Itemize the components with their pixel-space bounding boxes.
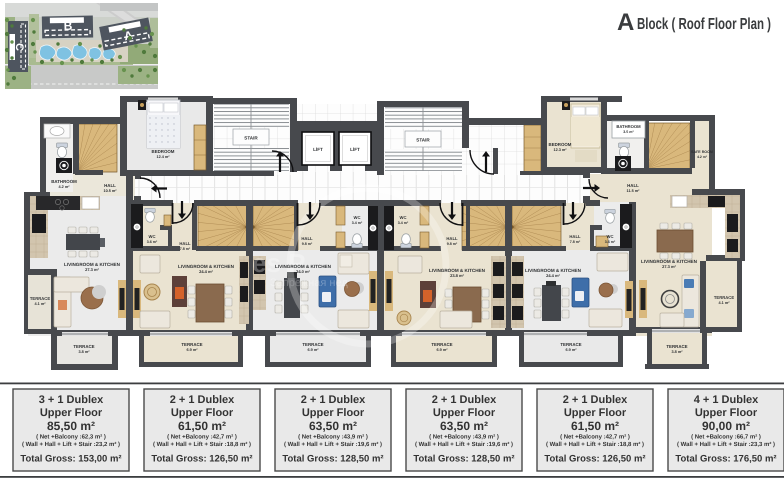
svg-text:2 + 1 Dublex: 2 + 1 Dublex [432, 394, 497, 406]
svg-text:( Wall + Hall + Lift + Stair :: ( Wall + Hall + Lift + Stair :19,6 m² ) [284, 441, 382, 448]
svg-text:WC: WC [400, 215, 407, 220]
svg-text:3.6 m²: 3.6 m² [605, 240, 616, 244]
svg-text:3.8 m²: 3.8 m² [79, 350, 91, 354]
svg-text:TERRACE: TERRACE [560, 342, 581, 347]
svg-text:( Net +Balcony :43,9 m² ): ( Net +Balcony :43,9 m² ) [298, 434, 368, 441]
svg-text:TERRACE: TERRACE [431, 342, 452, 347]
svg-text:6.9 m²: 6.9 m² [437, 348, 449, 352]
svg-text:HALL: HALL [569, 234, 581, 239]
svg-text:B: B [64, 19, 73, 33]
svg-text:HALL: HALL [179, 241, 191, 246]
svg-text:TERRACE: TERRACE [714, 295, 734, 300]
svg-text:( Wall + Hall + Lift + Stair :: ( Wall + Hall + Lift + Stair :23,2 m² ) [22, 441, 120, 448]
svg-text:WC: WC [354, 215, 361, 220]
svg-text:24.4 m²: 24.4 m² [546, 273, 560, 278]
svg-text:BEDROOM: BEDROOM [549, 142, 572, 147]
svg-text:( Net +Balcony :43,9 m² ): ( Net +Balcony :43,9 m² ) [429, 434, 499, 441]
svg-text:Upper Floor: Upper Floor [433, 407, 496, 419]
svg-text:TERRACE: TERRACE [181, 342, 202, 347]
svg-text:2 + 1 Dublex: 2 + 1 Dublex [563, 394, 628, 406]
svg-text:63,50 m²: 63,50 m² [440, 419, 488, 433]
svg-text:HALL: HALL [301, 236, 313, 241]
svg-text:TERRACE: TERRACE [73, 344, 94, 349]
svg-text:Block ( Roof Floor Plan ): Block ( Roof Floor Plan ) [637, 16, 771, 33]
svg-text:24.0 m²: 24.0 m² [296, 269, 310, 274]
svg-text:3 + 1 Dublex: 3 + 1 Dublex [39, 394, 104, 406]
svg-text:( Wall + Hall + Lift + Stair :: ( Wall + Hall + Lift + Stair :23,3 m² ) [677, 441, 775, 448]
svg-text:HALL: HALL [627, 183, 639, 188]
svg-text:A: A [617, 9, 634, 36]
svg-text:27.3 m²: 27.3 m² [662, 264, 676, 269]
svg-text:3.5 m²: 3.5 m² [623, 130, 634, 134]
svg-text:11.5 m²: 11.5 m² [627, 189, 641, 193]
svg-text:Total Gross: 126,50 m²: Total Gross: 126,50 m² [544, 454, 645, 465]
svg-text:3.4 m²: 3.4 m² [398, 221, 409, 225]
svg-text:90,00 m²: 90,00 m² [702, 419, 750, 433]
svg-text:Total Gross: 128,50 m²: Total Gross: 128,50 m² [413, 454, 514, 465]
svg-text:Total Gross: 153,00 m²: Total Gross: 153,00 m² [20, 454, 121, 465]
svg-text:Upper Floor: Upper Floor [695, 407, 758, 419]
svg-text:WC: WC [149, 234, 156, 239]
svg-text:TERRACE: TERRACE [30, 296, 50, 301]
svg-text:61,50 m²: 61,50 m² [178, 419, 226, 433]
svg-text:12.3 m²: 12.3 m² [553, 148, 567, 152]
svg-text:Запрежная нед: Запрежная нед [270, 277, 348, 289]
svg-text:7.8 m²: 7.8 m² [570, 240, 581, 244]
svg-text:HALL: HALL [104, 183, 116, 188]
svg-text:63,50 m²: 63,50 m² [309, 419, 357, 433]
svg-text:6.9 m²: 6.9 m² [308, 348, 320, 352]
svg-text:6.9 m²: 6.9 m² [566, 348, 578, 352]
svg-text:WC: WC [607, 234, 614, 239]
svg-text:TERRACE: TERRACE [302, 342, 323, 347]
svg-text:9.8 m²: 9.8 m² [302, 242, 313, 246]
svg-text:Total Gross: 128,50 m²: Total Gross: 128,50 m² [282, 454, 383, 465]
svg-text:Total Gross: 126,50 m²: Total Gross: 126,50 m² [151, 454, 252, 465]
svg-text:LİFT: LİFT [313, 147, 323, 152]
svg-text:Upper Floor: Upper Floor [40, 407, 103, 419]
svg-text:( Wall + Hall + Lift + Stair :: ( Wall + Hall + Lift + Stair :18,8 m² ) [546, 441, 644, 448]
svg-text:9.8 m²: 9.8 m² [447, 242, 458, 246]
svg-text:3.4 m²: 3.4 m² [352, 221, 363, 225]
svg-text:7.8 m²: 7.8 m² [180, 247, 191, 251]
svg-text:2 + 1 Dublex: 2 + 1 Dublex [170, 394, 235, 406]
svg-text:( Wall + Hall + Lift + Stair :: ( Wall + Hall + Lift + Stair :18,8 m² ) [153, 441, 251, 448]
svg-text:4 + 1 Dublex: 4 + 1 Dublex [694, 394, 759, 406]
svg-text:4.1 m²: 4.1 m² [35, 302, 47, 306]
svg-text:Upper Floor: Upper Floor [171, 407, 234, 419]
svg-text:LİFT: LİFT [350, 147, 360, 152]
svg-text:10.5 m²: 10.5 m² [103, 189, 117, 193]
svg-text:24.4 m²: 24.4 m² [199, 269, 213, 274]
svg-text:Upper Floor: Upper Floor [302, 407, 365, 419]
svg-text:61,50 m²: 61,50 m² [571, 419, 619, 433]
svg-text:HALL: HALL [446, 236, 458, 241]
svg-text:( Net +Balcony :42,7 m² ): ( Net +Balcony :42,7 m² ) [560, 434, 630, 441]
svg-text:85,50 m²: 85,50 m² [47, 419, 95, 433]
svg-text:BATHROOM: BATHROOM [51, 179, 77, 184]
svg-text:BEDROOM: BEDROOM [152, 149, 175, 154]
svg-text:STAIR: STAIR [244, 136, 258, 141]
svg-text:2 + 1 Dublex: 2 + 1 Dublex [301, 394, 366, 406]
svg-text:SAFE ROOM: SAFE ROOM [691, 150, 713, 154]
svg-text:Total Gross: 176,50 m²: Total Gross: 176,50 m² [675, 454, 776, 465]
svg-text:TERRACE: TERRACE [666, 344, 687, 349]
svg-text:BATHROOM: BATHROOM [616, 124, 641, 129]
svg-text:( Net +Balcony :66,7 m² ): ( Net +Balcony :66,7 m² ) [691, 434, 761, 441]
svg-text:6.9 m²: 6.9 m² [187, 348, 199, 352]
svg-text:( Net +Balcony :62,3 m² ): ( Net +Balcony :62,3 m² ) [36, 434, 106, 441]
svg-text:STAIR: STAIR [416, 138, 430, 143]
svg-text:12.4 m²: 12.4 m² [156, 155, 170, 159]
svg-text:3.8 m²: 3.8 m² [672, 350, 684, 354]
svg-text:23.8 m²: 23.8 m² [450, 273, 464, 278]
svg-text:4.2 m²: 4.2 m² [697, 155, 708, 159]
svg-text:Upper Floor: Upper Floor [564, 407, 627, 419]
svg-text:4.1 m²: 4.1 m² [719, 301, 731, 305]
svg-text:4.2 m²: 4.2 m² [59, 185, 71, 189]
svg-text:C: C [13, 43, 25, 51]
svg-text:( Net +Balcony :42,7 m² ): ( Net +Balcony :42,7 m² ) [167, 434, 237, 441]
svg-text:3.6 m²: 3.6 m² [147, 240, 158, 244]
svg-text:( Wall + Hall + Lift + Stair :: ( Wall + Hall + Lift + Stair :19,6 m² ) [415, 441, 513, 448]
svg-text:27.3 m²: 27.3 m² [85, 267, 99, 272]
